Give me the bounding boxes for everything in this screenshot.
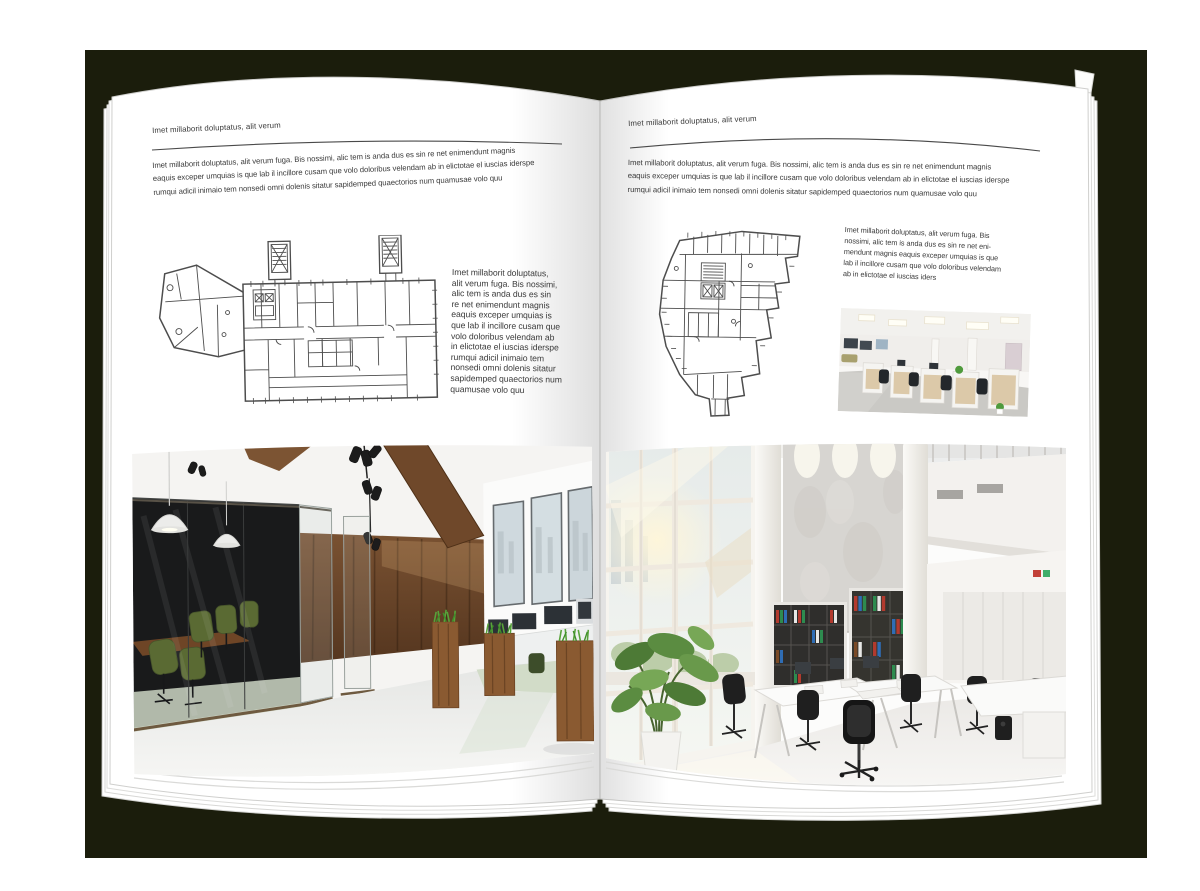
lounge-sofa	[841, 354, 857, 362]
round-column	[903, 442, 928, 684]
floor-plan-right	[647, 224, 832, 425]
vent-grille	[937, 490, 963, 499]
left-page-caption: Imet millaborit doluptatus, alit verum f…	[450, 267, 563, 396]
atrium-office-photo	[605, 442, 1067, 794]
far-door	[1005, 343, 1022, 370]
safety-sign-red	[1033, 570, 1041, 577]
windows	[493, 487, 593, 607]
cabinet-wall	[927, 550, 1067, 688]
glass-divider	[339, 516, 374, 694]
spotlight-glow	[794, 442, 896, 478]
stair-tower-icon	[268, 235, 402, 286]
right-page-caption: Imet millaborit doluptatus, alit verum f…	[843, 224, 1003, 286]
waste-bin	[995, 716, 1012, 740]
floor-plan-left	[156, 234, 440, 415]
safety-sign-green	[1043, 570, 1050, 577]
magazine-mockup: Imet millaborit doluptatus, alit verum I…	[0, 0, 1200, 891]
right-page-intro: Imet millaborit doluptatus, alit verum f…	[628, 156, 1010, 201]
small-office-photo	[838, 308, 1031, 417]
loft-office-photo	[131, 443, 594, 786]
